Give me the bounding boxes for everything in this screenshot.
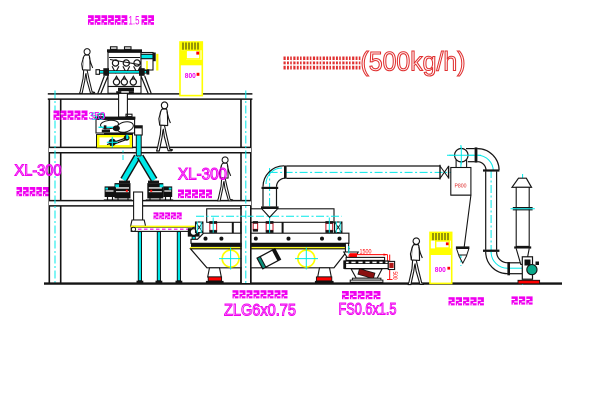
svg-text:FS0.6x1.5: FS0.6x1.5 [339, 301, 397, 319]
svg-text:XL-300: XL-300 [178, 166, 227, 184]
svg-text:1500: 1500 [360, 248, 372, 255]
svg-text:(500kg/h): (500kg/h) [361, 47, 466, 77]
svg-text:XL-300: XL-300 [15, 163, 62, 180]
svg-text:ZLG6x0.75: ZLG6x0.75 [224, 301, 296, 320]
svg-text:1.5: 1.5 [129, 16, 140, 28]
svg-text:P800: P800 [455, 184, 467, 190]
svg-text:350: 350 [89, 111, 106, 123]
svg-text:500: 500 [391, 272, 397, 281]
svg-text:800: 800 [435, 265, 446, 274]
svg-text:800: 800 [185, 71, 196, 80]
